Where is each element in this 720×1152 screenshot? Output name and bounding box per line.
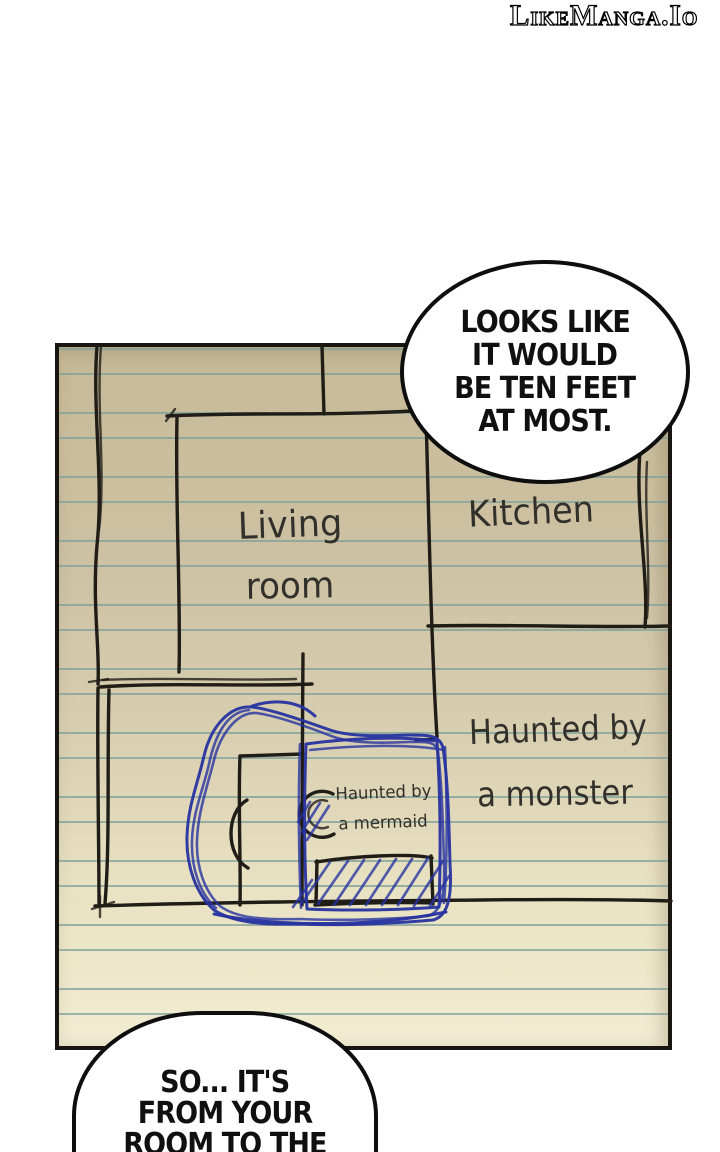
label-kitchen: Kitchen (453, 489, 609, 537)
speech-line: ROOM TO THE (123, 1129, 326, 1152)
speech-line: SO... IT'S (160, 1067, 289, 1098)
bedroom-left-wall (98, 688, 99, 906)
living-room-left-wall (177, 418, 180, 672)
site-watermark: LikeManga.Io (510, 0, 698, 32)
kitchen-bottom-wall (428, 625, 670, 626)
living-kitchen-divider (416, 416, 437, 740)
label-mermaid-line2: a mermaid (331, 811, 434, 835)
living-room-top-wall (167, 411, 412, 416)
bedroom-top-wall (100, 684, 312, 687)
bedroom-left-wall-double (105, 690, 109, 903)
top-partition-line (322, 346, 324, 414)
center-spine-wall (302, 654, 303, 905)
speech-line: AT MOST. (478, 405, 611, 438)
bedroom-top-wall-double (103, 679, 296, 680)
label-mermaid-line1: Haunted by (335, 781, 431, 804)
closet-box (239, 754, 303, 905)
speech-line: LOOKS LIKE (460, 306, 630, 339)
comic-page: LikeManga.Io (0, 0, 720, 1152)
kitchen-right-wall (639, 452, 646, 627)
speech-bubble-top: LOOKS LIKE IT WOULD BE TEN FEET AT MOST. (400, 260, 690, 484)
speech-line: IT WOULD (473, 339, 618, 372)
speech-line: BE TEN FEET (454, 372, 635, 405)
label-living-room-line2: room (227, 565, 353, 608)
label-monster-line2: a monster (462, 772, 648, 815)
floor-plan-sketch (0, 0, 720, 1152)
label-living-room-line1: Living (227, 501, 354, 548)
speech-line: FROM YOUR (138, 1098, 313, 1129)
label-monster-line1: Haunted by (460, 707, 656, 754)
